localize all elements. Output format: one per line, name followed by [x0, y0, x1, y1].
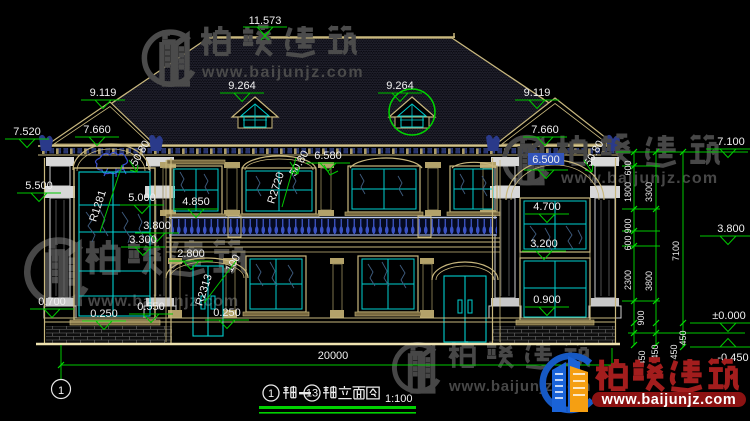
svg-text:7.660: 7.660 — [531, 124, 559, 136]
svg-text:±0.000: ±0.000 — [712, 310, 746, 322]
svg-text:0.250: 0.250 — [90, 308, 118, 320]
svg-text:9.264: 9.264 — [228, 80, 256, 92]
svg-text:13: 13 — [306, 388, 318, 400]
svg-text:9.264: 9.264 — [386, 80, 414, 92]
svg-text:450: 450 — [678, 330, 688, 345]
svg-text:2.800: 2.800 — [177, 248, 205, 260]
svg-text:4.700: 4.700 — [533, 201, 561, 213]
svg-text:450: 450 — [669, 344, 679, 359]
svg-text:1:100: 1:100 — [385, 393, 413, 405]
svg-text:1800: 1800 — [623, 182, 633, 202]
svg-text:900: 900 — [636, 310, 646, 325]
svg-text:0.900: 0.900 — [533, 294, 561, 306]
svg-text:3.200: 3.200 — [530, 238, 558, 250]
svg-text:0.700: 0.700 — [38, 296, 66, 308]
svg-text:6.500: 6.500 — [532, 154, 560, 166]
svg-text:4.850: 4.850 — [182, 196, 210, 208]
svg-text:3.300: 3.300 — [129, 234, 157, 246]
svg-text:3.800: 3.800 — [143, 220, 171, 232]
svg-text:600: 600 — [623, 235, 633, 250]
svg-text:3.800: 3.800 — [717, 223, 745, 235]
svg-text:9.119: 9.119 — [524, 87, 551, 99]
svg-text:5.500: 5.500 — [25, 180, 53, 192]
svg-text:3800: 3800 — [644, 271, 654, 291]
svg-text:5.000: 5.000 — [128, 192, 156, 204]
svg-text:7.520: 7.520 — [13, 126, 41, 138]
svg-text:1: 1 — [268, 388, 274, 400]
svg-text:11.573: 11.573 — [249, 15, 282, 27]
svg-text:www.baijunjz.com: www.baijunjz.com — [201, 64, 364, 81]
svg-text:7.660: 7.660 — [83, 124, 111, 136]
svg-text:www.baijunjz.com: www.baijunjz.com — [560, 170, 718, 187]
svg-text:3300: 3300 — [644, 182, 654, 202]
svg-text:600: 600 — [623, 160, 633, 175]
svg-text:6.580: 6.580 — [314, 150, 342, 162]
svg-text:0.550: 0.550 — [137, 301, 165, 313]
svg-text:7100: 7100 — [671, 241, 681, 261]
svg-text:1: 1 — [58, 385, 64, 397]
svg-text:0.250: 0.250 — [213, 307, 241, 319]
svg-text:9.119: 9.119 — [90, 87, 117, 99]
svg-text:7.100: 7.100 — [717, 136, 745, 148]
svg-text:20000: 20000 — [318, 350, 349, 362]
svg-text:www.baijunjz.com: www.baijunjz.com — [601, 392, 737, 408]
svg-text:900: 900 — [623, 218, 633, 233]
svg-text:2300: 2300 — [623, 270, 633, 290]
